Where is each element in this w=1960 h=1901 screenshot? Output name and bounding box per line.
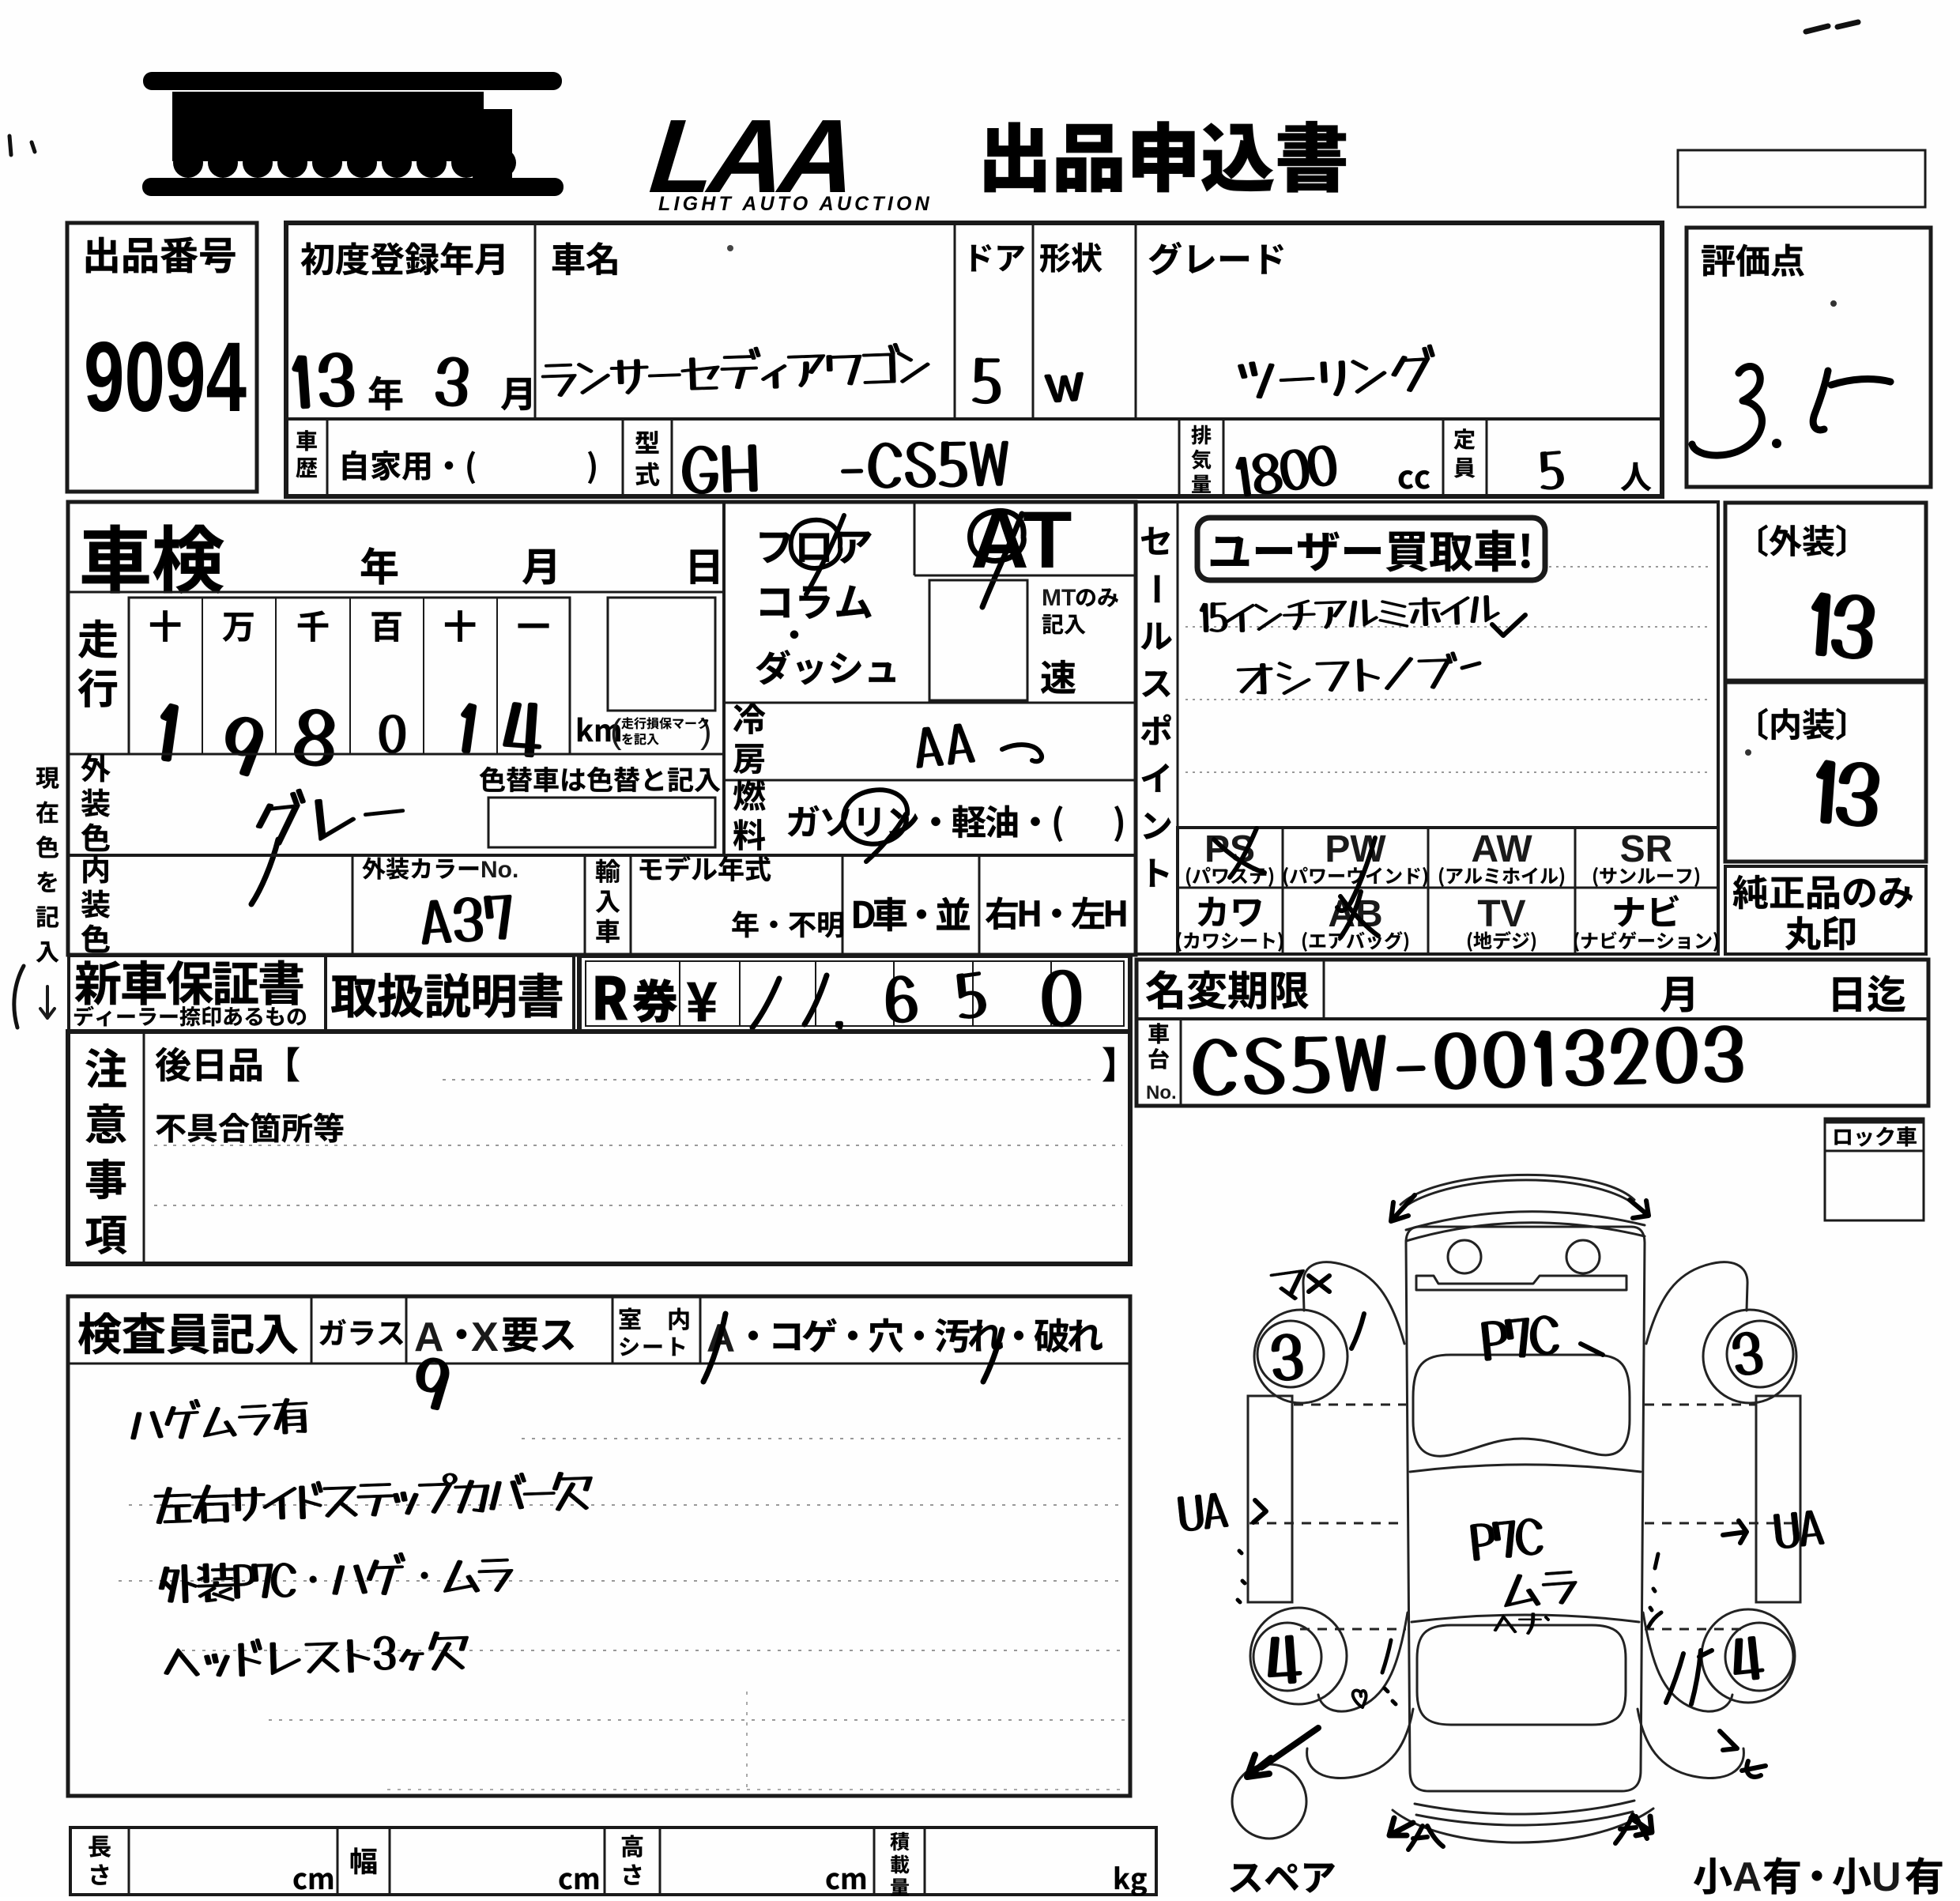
svg-text:U: U bbox=[1871, 1854, 1902, 1897]
svg-text:(: ( bbox=[610, 712, 622, 751]
svg-text:A: A bbox=[414, 1314, 444, 1360]
svg-text:9094: 9094 bbox=[84, 322, 247, 432]
svg-text:AW: AW bbox=[1471, 828, 1532, 870]
svg-text:PW: PW bbox=[1325, 828, 1386, 870]
svg-text:TV: TV bbox=[1477, 893, 1525, 935]
svg-text:LIGHT AUTO AUCTION: LIGHT AUTO AUCTION bbox=[658, 193, 933, 215]
svg-text:No.: No. bbox=[1146, 1082, 1177, 1103]
svg-text:): ) bbox=[700, 712, 712, 751]
svg-text:A: A bbox=[1732, 1854, 1762, 1897]
svg-text:SR: SR bbox=[1620, 828, 1673, 870]
svg-text:X: X bbox=[471, 1314, 499, 1360]
svg-text:No.: No. bbox=[481, 857, 518, 883]
svg-text:MT: MT bbox=[1042, 585, 1076, 611]
